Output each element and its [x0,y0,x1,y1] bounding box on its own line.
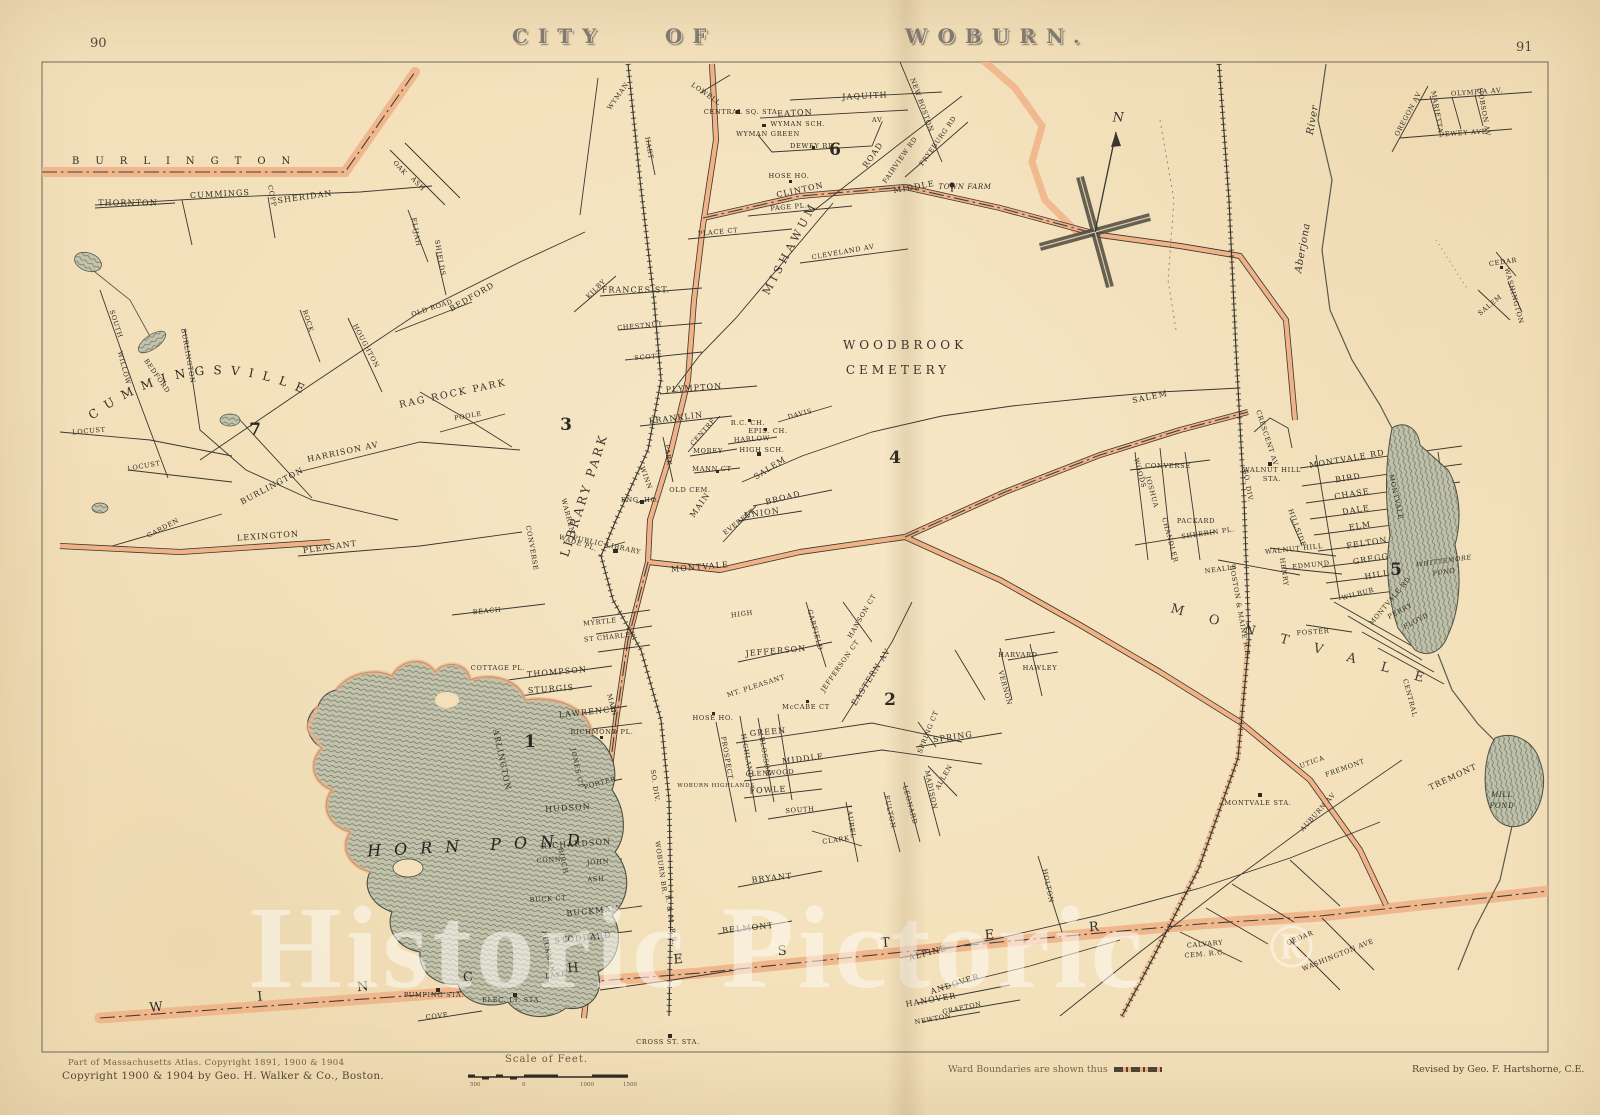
revised-by-note: Revised by Geo. F. Hartshorne, C.E. [1412,1064,1584,1075]
whittemore-pond [1386,425,1459,654]
copyright-note: Copyright 1900 & 1904 by Geo. H. Walker … [62,1070,384,1082]
mill-pond [1485,735,1543,826]
ward-boundaries-note: Ward Boundaries are shown thus [948,1064,1162,1075]
scale-title: Scale of Feet. [505,1054,588,1065]
svg-text:BURLINGTON: BURLINGTON [72,156,306,167]
district-names: BURLINGTON WINCHESTER CUMMINGSVILLE MONT… [72,156,1451,1016]
ward-boundary-sample [1114,1067,1162,1072]
scale-label: 1000 [580,1082,594,1088]
page-number-left: 90 [90,36,107,51]
streets [60,62,1532,1022]
railroads [601,64,1249,1016]
map-border [42,62,1548,1052]
ward-note-text: Ward Boundaries are shown thus [948,1064,1108,1075]
town-farm-tree-icon [949,182,954,187]
atlas-note: Part of Massachusetts Atlas. Copyright 1… [68,1058,344,1068]
map-canvas: BURLINGTON WINCHESTER CUMMINGSVILLE MONT… [0,0,1600,1115]
atlas-page: BURLINGTON WINCHESTER CUMMINGSVILLE MONT… [0,0,1600,1115]
scale-label: 500 [470,1082,481,1088]
compass-north-letter: N [1113,111,1128,126]
aberjona-river [90,64,1512,970]
ponds [72,249,1544,1017]
page-number-right: 91 [1516,40,1533,55]
scale-bar [468,1072,638,1082]
scale-label: 1500 [623,1082,637,1088]
svg-text:CUMMINGSVILLE: CUMMINGSVILLE [86,363,315,422]
horn-pond-island [393,859,423,877]
main-roads [60,64,1386,1018]
scale-label: 0 [522,1082,526,1088]
